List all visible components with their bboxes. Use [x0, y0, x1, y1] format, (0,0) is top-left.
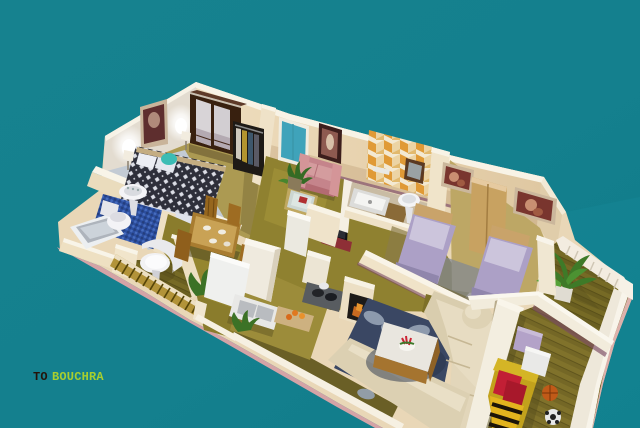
svg-text:TO: TO	[33, 370, 48, 384]
svg-text:BOUCHRA: BOUCHRA	[52, 370, 104, 384]
